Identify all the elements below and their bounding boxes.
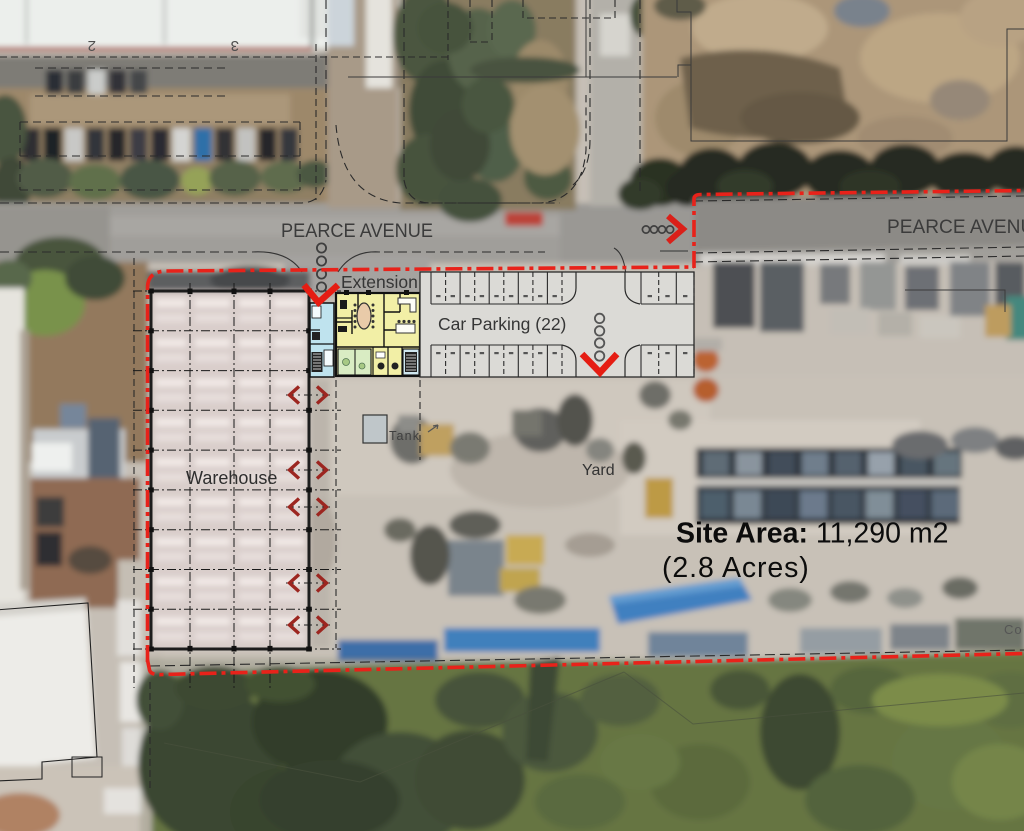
- svg-text:2: 2: [88, 37, 96, 54]
- svg-text:Warehouse: Warehouse: [186, 468, 277, 488]
- svg-text:3: 3: [231, 37, 239, 54]
- svg-text:Car Parking (22): Car Parking (22): [438, 314, 566, 334]
- svg-text:Extension: Extension: [341, 272, 418, 292]
- svg-text:Co: Co: [1004, 622, 1023, 637]
- svg-text:PEARCE AVENUE: PEARCE AVENUE: [281, 221, 433, 242]
- svg-text:PEARCE AVENUE: PEARCE AVENUE: [887, 217, 1024, 238]
- svg-text:Site Area: 11,290 m2: Site Area: 11,290 m2: [676, 518, 948, 550]
- svg-text:Yard: Yard: [582, 462, 615, 479]
- svg-text:Tank: Tank: [389, 429, 420, 443]
- svg-text:(2.8 Acres): (2.8 Acres): [662, 552, 810, 584]
